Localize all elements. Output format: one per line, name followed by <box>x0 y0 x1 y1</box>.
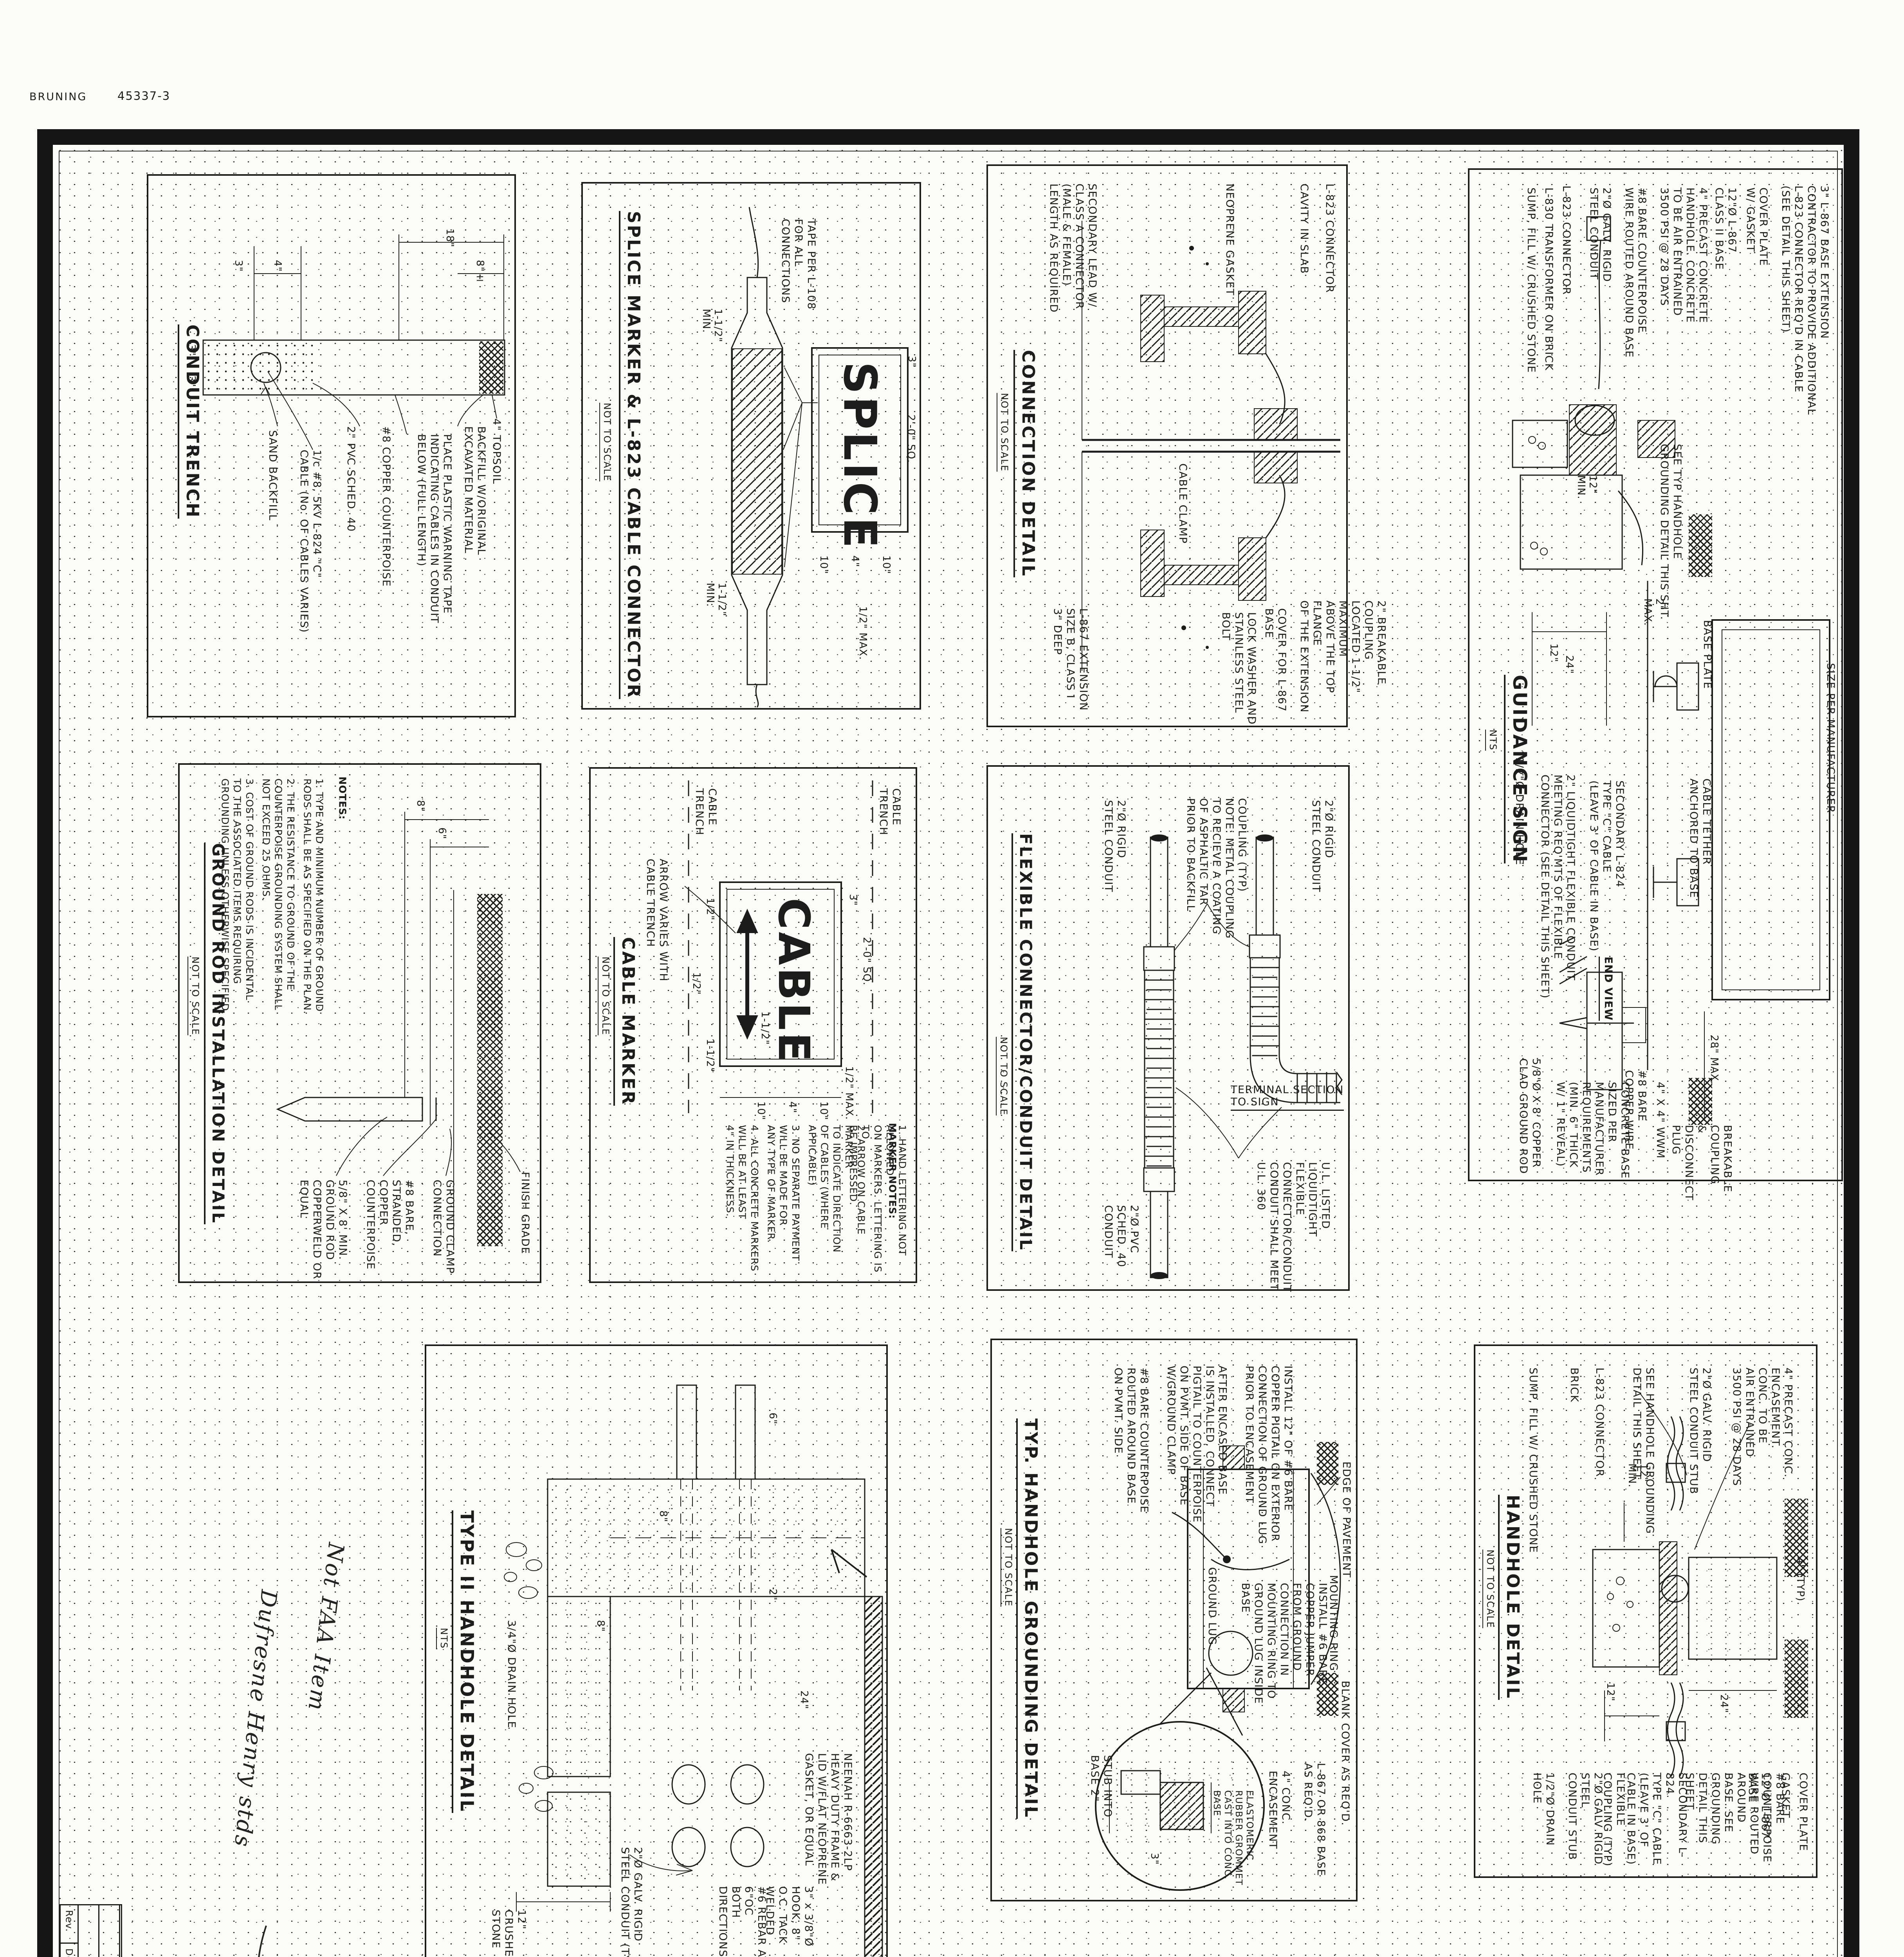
callout: COUPLING (TYP) NOTE: METAL COUPLING TO R… <box>1184 798 1248 939</box>
callout: 1/2"Ø DRAIN HOLE <box>1530 1773 1556 1876</box>
dimension-label: 4" <box>272 260 283 272</box>
callout: BASE PLATE <box>1700 620 1713 689</box>
dimension-label: 2'-0" SQ. <box>861 937 873 986</box>
callout: #8 BARE COUNTERPOISE WIRE ROUTED AROUND … <box>1622 187 1648 358</box>
callout: ARROW VARIES WITH CABLE TRENCH <box>644 859 669 982</box>
panel-splice-marker: SPLICE MARKER & L-823 CABLE CONNECTOR NO… <box>581 182 921 710</box>
conduit-trench-sketch <box>148 176 514 716</box>
callout: 2"Ø GALV. RIGID STEEL CONDUIT <box>1587 187 1613 282</box>
dimension-label: 10" <box>818 555 829 574</box>
dimension-label: 12" MIN. <box>1626 1463 1650 1488</box>
panel-title: FLEXIBLE CONNECTOR/CONDUIT DETAIL <box>1012 833 1035 1251</box>
splice-marker-text: SPLICE <box>833 362 886 550</box>
callout: SECONDARY LEAD W/ CLASS A CONNECTOR (MAL… <box>1047 184 1098 313</box>
callout: CABLE TRENCH <box>876 788 902 836</box>
concrete-speckle <box>549 1480 864 1595</box>
dimension-label: 2'-0" SQ. <box>905 414 917 463</box>
panel-flexible-connector: FLEXIBLE CONNECTOR/CONDUIT DETAIL NOT TO… <box>986 765 1350 1291</box>
dimension-label: 24" <box>798 1690 810 1709</box>
dimension-label: 1/2" MAX. <box>857 606 869 660</box>
callout: COVER PLATE W/ GASKET <box>1744 187 1769 266</box>
note: 2. ARROW ON CABLE MARKER TO INDICATE DIR… <box>806 1125 867 1281</box>
callout: 4" PRECAST CONC. ENCASEMENT. CONC. TO BE… <box>1730 1368 1794 1486</box>
dimension-label: 24" <box>1563 655 1575 674</box>
callout: GROUND CLAMP CONNECTION <box>430 1180 456 1274</box>
callout: SECONDARY L-824 TYPE "C" CABLE (LEAVE 3'… <box>1624 1773 1689 1876</box>
callout: U.L. LISTED LIQUIDTIGHT FLEXIBLE CONNECT… <box>1254 1162 1332 1292</box>
scale-note: NOT TO SCALE <box>188 957 201 1035</box>
callout: 3" x 3/8"Ø HOOK, 8" O.C. TACK WELDED <box>763 1886 815 1957</box>
scale-note: NOT TO SCALE <box>598 957 611 1035</box>
panel-guidance-sign: GUIDANCE SIGN NTS 3" L-867 BASE EXTENSIO… <box>1468 168 1843 1181</box>
dimension-label: 1/2" <box>704 898 716 921</box>
dimension-label: 1-1/2" <box>759 1011 771 1045</box>
callout: COVER FOR L-867 BASE <box>1262 608 1288 726</box>
callout: L-830 TRANSFORMER ON BRICK <box>1542 187 1555 371</box>
dimension-label: 2" MAX. <box>1642 598 1665 626</box>
callout: 2" PVC SCHED. 40 <box>344 426 357 532</box>
callout: EDGE OF PAVEMENT <box>1340 1461 1352 1578</box>
note: 3. COST OF GROUND RODS IS INCIDENTAL TO … <box>219 778 256 1015</box>
callout: MOUNTING RING <box>1327 1575 1340 1671</box>
dimension-label: 3" <box>906 356 918 368</box>
pavement-hatch <box>1317 1442 1338 1485</box>
callout: NEENAH R-6663-2LP HEAVY DUTY FRAME & LID… <box>802 1753 854 1885</box>
finish-grade-hatch <box>477 894 503 1246</box>
callout: 4" PRECAST CONCRETE HANDHOLE. CONCRETE T… <box>1657 187 1709 323</box>
dimension-label: 4" <box>786 1101 798 1114</box>
cable-marker-text: CABLE <box>769 898 819 1064</box>
callout: L-867 OR 868 BASE AS REQ'D. <box>1301 1763 1327 1876</box>
encasement-speckle <box>1690 1559 1776 1658</box>
callout: L-823 CONNECTOR <box>1560 186 1572 295</box>
callout: 4" TOPSOIL <box>490 418 503 485</box>
scale-note: NOT TO SCALE <box>1482 1550 1496 1628</box>
grade-hatch <box>1785 1640 1808 1718</box>
panel-handhole-detail: HANDHOLE DETAIL NOT TO SCALE SUMP, FILL … <box>1474 1344 1817 1878</box>
callout: L-823 CONNECTOR <box>1323 184 1336 293</box>
callout: BLANK COVER AS REQ'D. <box>1338 1681 1351 1826</box>
dimension-label: 3" <box>233 260 244 272</box>
scale-note: NOT TO SCALE <box>996 1037 1009 1115</box>
panel-title: CABLE MARKER <box>613 937 638 1106</box>
dimension-label: 12" <box>1548 643 1560 662</box>
callout: PLACE PLASTIC WARNING TAPE INDICATING CA… <box>415 434 453 624</box>
callout: 12"Ø L-867 CLASS II BASE <box>1712 187 1738 270</box>
callout: #8 COPPER COUNTERPOISE <box>379 426 392 587</box>
scale-note: NOT TO SCALE <box>599 403 613 481</box>
callout-terminal-section: TERMINAL SECTION TO SIGN <box>1231 1084 1344 1111</box>
panel-conduit-trench: CONDUIT TRENCH SAND BACKFILL 1/c #8, 5KV… <box>147 174 516 717</box>
dimension-label: 2" <box>767 1589 779 1601</box>
connection-detail-sketch <box>988 166 1346 726</box>
callout: 4" CONC. ENCASEMENT <box>1266 1771 1292 1900</box>
callout: 2"Ø GALV. RIGID STEEL CONDUIT STUB <box>1687 1368 1713 1494</box>
dimension-label: 8" <box>415 800 426 812</box>
callout: 2"Ø GALV RIGID STEEL CONDUIT STUB <box>1565 1773 1604 1876</box>
dimension-label: 8"± <box>474 260 486 284</box>
callout: 2"Ø GALV. RIGID STEEL CONDUIT (TYP) <box>618 1847 644 1957</box>
dimension-label: 1/2" MAX. <box>843 1066 855 1120</box>
callout: 2" BREAKABLE COUPLING LOCATED 1-1/2" MAX… <box>1297 600 1388 726</box>
callout: LOCK WASHER AND STAINLESS STEEL BOLT <box>1219 612 1258 726</box>
callout: L-823 CONNECTOR <box>1593 1368 1606 1477</box>
callout: 5/8"Ø X 8' COPPER CLAD GROUND ROD <box>1516 1058 1542 1174</box>
scale-note: NOT TO SCALE <box>1001 1528 1014 1607</box>
panel-handhole-grounding: TYP. HANDHOLE GROUNDING DETAIL NOT TO SC… <box>990 1339 1358 1901</box>
callout: L-867 EXTENSION SIZE B, CLASS I 3" DEEP <box>1051 608 1089 711</box>
callout: CONCRETE BASE SIZED PER MANUFACTURER REQ… <box>1554 1082 1631 1180</box>
description-col-header: Description <box>63 1948 74 1957</box>
callout: SEE TYP HANDHOLE GROUNDING DETAIL THIS S… <box>1657 444 1683 620</box>
dimension-label: 3" <box>186 344 197 356</box>
callout: CABLE TETHER ANCHORED TO BASE <box>1687 778 1713 898</box>
callout: CABLE TRENCH <box>692 788 718 836</box>
callout: 2" LIQUIDTIGHT FLEXIBLE CONDUIT MEETING … <box>1538 775 1577 999</box>
dimension-label: 1-1/2" MIN. <box>700 309 724 342</box>
dimension-label: 10" <box>880 555 892 574</box>
note: 4. ALL CONCRETE MARKERS WILL BE AT LEAST… <box>724 1125 761 1272</box>
callout: INSTALL #6 BARE COPPER JUMPER FROM GROUN… <box>1239 1583 1329 1704</box>
callout: #6 REBAR AT 6"OC BOTH DIRECTIONS <box>716 1886 768 1957</box>
dimension-label: 4" <box>849 555 861 568</box>
note: 1. TYPE AND MINIMUM NUMBER OF GROUND ROD… <box>301 778 326 1014</box>
dimension-label: 6" <box>767 1413 779 1425</box>
callout: CABLE CLAMP <box>1176 463 1189 544</box>
dimension-label: 3" <box>847 894 859 906</box>
dimension-label: 10" <box>818 1101 829 1120</box>
callout: END VIEW <box>1599 957 1614 1021</box>
callout: INSTALL 12" OF #6 BARE COPPER PIGTAIL ON… <box>1242 1366 1294 1544</box>
callout: 1/c #8, 5KV L-824 "C" CABLE (No. OF CABL… <box>297 450 323 633</box>
dimension-label: 4" (TYP) <box>1794 1557 1806 1602</box>
scanned-drawing-sheet: { "margin": {"maker": "BRUNING", "stock_… <box>0 0 1904 1957</box>
callout: SUMP, FILL W/ CRUSHED STONE <box>1524 187 1537 373</box>
dimension-label: 10" <box>755 1101 767 1120</box>
callout: 4" X 4" WWM <box>1653 1082 1666 1159</box>
note: 3. NO SEPARATE PAYMENT WILL BE MADE FOR … <box>765 1125 802 1261</box>
callout: SAND BACKFILL <box>266 430 279 521</box>
callout: NEOPRENE GASKET <box>1223 184 1236 296</box>
callout: 1/2"Ø DRAIN HOLE <box>1513 757 1525 865</box>
callout: SIZE PER MANUFACTURER <box>1824 663 1837 813</box>
dimension-label: 12" MIN. <box>1575 475 1599 499</box>
topsoil-hatch <box>479 341 503 394</box>
callout: SUMP, FILL W/ CRUSHED STONE <box>1526 1368 1539 1553</box>
callout: ELASTOMERIC RUBBER GROMMET CAST INTO CON… <box>1211 1790 1255 1885</box>
callout: FINISH GRADE <box>518 1172 531 1254</box>
callout: 2"Ø PVC SCHED. 40 CONDUIT <box>1102 1205 1140 1289</box>
dimension-label: 1/2" <box>691 972 702 995</box>
panel-title: HANDHOLE DETAIL <box>1498 1495 1523 1700</box>
callout: 3/4"Ø DRAIN HOLE <box>505 1620 517 1728</box>
callout: COVER PLATE <box>1796 1773 1809 1851</box>
callout: SECONDARY L-824 TYPE "C" CABLE (LEAVE 3'… <box>1587 780 1626 952</box>
scale-note: NOT TO SCALE <box>997 393 1010 472</box>
panel-ground-rod-installation: GROUND ROD INSTALLATION DETAIL NOT TO SC… <box>178 763 541 1283</box>
callout: #8 BARE COUNTERPOISE ROUTED AROUND BASE … <box>1111 1368 1150 1513</box>
callout: CAVITY IN SLAB <box>1297 184 1310 274</box>
callout: 3" L-867 BASE EXTENSION CONTRACTOR TO PR… <box>1779 186 1830 415</box>
callout: BRICK <box>1567 1368 1580 1402</box>
panel-title: TYP. HANDHOLE GROUNDING DETAIL <box>1016 1418 1041 1819</box>
note: 2. THE RESISTANCE TO GROUND OF THE COUNT… <box>260 778 297 1011</box>
callout: GROUND LUG <box>1205 1567 1218 1645</box>
dimension-label: 1-1/2" MIN. <box>704 583 728 616</box>
revision-table: Rev. Description By Date <box>59 1904 122 1957</box>
margin-maker-note: BRUNING <box>29 91 87 103</box>
dimension-label: 24" <box>1718 1694 1730 1713</box>
panel-title: SPLICE MARKER & L-823 CABLE CONNECTOR <box>619 211 644 699</box>
callout: 2"Ø RIGID STEEL CONDUIT <box>1309 800 1335 892</box>
dimension-label: 18" <box>444 229 456 247</box>
dimension-label: 1-1/2" <box>704 1039 716 1072</box>
dimension-label: 3" <box>186 375 197 387</box>
callout: #8 BARE, STRANDED, COPPER COUNTERPOISE <box>364 1180 415 1281</box>
callout: 12"Ø L-867 BASE <box>1745 1773 1771 1838</box>
dimension-label: 12" <box>1605 1683 1616 1701</box>
callout: 12" CRUSHED STONE <box>489 1910 528 1957</box>
callout: AFTER ENCASED BASE IS INSTALLED, CONNECT… <box>1164 1366 1229 1523</box>
dimension-label: 3" <box>1149 1853 1160 1865</box>
panel-title: CONNECTION DETAIL <box>1013 350 1038 577</box>
rev-col-header: Rev. <box>63 1910 74 1932</box>
sand-backfill-hatch <box>204 341 314 394</box>
callout: TAPE PER L-108 FOR ALL CONNECTIONS <box>779 219 817 310</box>
callout: GASKET <box>1779 1773 1792 1818</box>
callout: FLEXIBLE COUPLING (TYP) <box>1601 1773 1626 1876</box>
concrete-speckle <box>549 1793 609 1885</box>
callout: STUB INTO BASE 2" <box>1088 1755 1114 1818</box>
ground-hatch <box>1689 514 1712 577</box>
panel-type2-handhole: TYPE II HANDHOLE DETAIL NTS 3/4"Ø DRAIN … <box>425 1344 888 1957</box>
dimension-label: 8" <box>595 1620 606 1632</box>
callout: SEE HANDHOLE GROUNDING DETAIL THIS SHEET <box>1630 1368 1656 1534</box>
callout: BACKFILL W/ORIGINAL EXCAVATED MATERIAL <box>462 426 487 555</box>
scale-note: NTS <box>1485 730 1498 751</box>
panel-title: TYPE II HANDHOLE DETAIL <box>452 1510 478 1813</box>
dimension-label: 8" <box>657 1510 669 1523</box>
scale-note: NTS <box>436 1628 449 1649</box>
callout: 2"Ø RIGID STEEL CONDUIT <box>1102 800 1127 892</box>
callout: BREAKABLE COUPLING & DISCONNECT PLUG <box>1669 1125 1734 1201</box>
callout: 5/8" X 8' MIN. GROUND ROD COPPERWELD OR … <box>297 1180 349 1281</box>
dimension-label: 28" MAX. <box>1708 1035 1720 1085</box>
ground-hatch <box>1689 1078 1712 1125</box>
notes-title: NOTES: <box>336 777 348 820</box>
margin-stock-number: 45337-3 <box>117 89 170 103</box>
panel-cable-marker: CABLE MARKER NOT TO SCALE CABLE TRENCH C… <box>589 767 917 1283</box>
dimension-label: 6" <box>436 827 448 840</box>
panel-connection-detail: CONNECTION DETAIL NOT TO SCALE SECONDARY… <box>986 164 1348 727</box>
